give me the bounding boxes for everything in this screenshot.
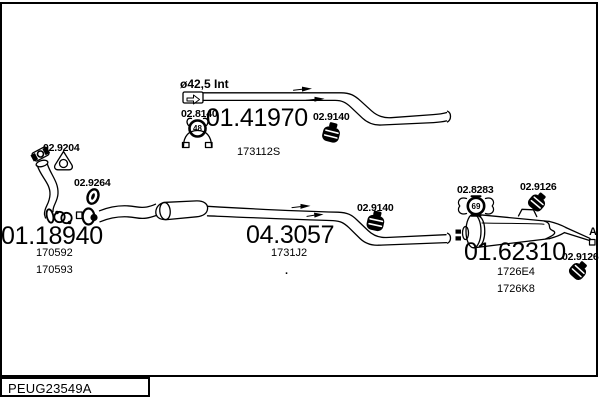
weld-arrow-icon xyxy=(314,213,324,218)
resonator-body xyxy=(156,201,208,220)
oe-number-rear-1: 1726E4 xyxy=(497,267,535,278)
hanger-size-label: 69 xyxy=(469,203,483,211)
diagram-code: PEUG23549A xyxy=(8,382,92,395)
muffler-bracket xyxy=(519,209,537,216)
part-number-rear-muffler: 01.62310 xyxy=(464,240,566,265)
end-marker-label: A xyxy=(589,227,597,238)
clamp-icon-top xyxy=(321,121,342,144)
gasket-size-label: 48 xyxy=(191,125,204,133)
ref-clamp-mid: 02.9140 xyxy=(357,203,394,214)
tailpipe xyxy=(565,228,591,241)
ref-clamp-rear-end: 02.9126 xyxy=(562,252,599,263)
weld-arrow-icon xyxy=(302,87,312,92)
ref-rubber-hanger: 02.8283 xyxy=(457,185,494,196)
stray-dot: . xyxy=(285,266,288,277)
weld-arrow-icon xyxy=(301,204,311,209)
oe-number-top-pipe: 173112S xyxy=(237,147,280,158)
oring-icon xyxy=(86,188,101,205)
muffler-end-seam xyxy=(544,221,555,239)
oe-number-front-pipe-1: 170592 xyxy=(36,248,73,259)
part-number-mid-pipe: 04.3057 xyxy=(246,223,334,248)
ref-clamp-rear-top: 02.9126 xyxy=(520,182,557,193)
exhaust-line-art xyxy=(0,0,600,400)
part-number-top-pipe: 01.41970 xyxy=(206,106,308,131)
oe-number-front-pipe-2: 170593 xyxy=(36,265,73,276)
ref-flange-gasket: 02.9204 xyxy=(43,143,80,154)
exhaust-diagram-page: ø42,5 Int 02.8140 01.41970 02.9140 17311… xyxy=(0,0,600,400)
diagram-code-box: PEUG23549A xyxy=(0,377,150,397)
part-number-front-pipe: 01.18940 xyxy=(1,224,103,249)
ref-clamp-top: 02.9140 xyxy=(313,112,350,123)
oe-number-mid-pipe: 1731J2 xyxy=(271,248,307,259)
flange-gasket-icon xyxy=(55,152,73,170)
pipe-diameter-note: ø42,5 Int xyxy=(180,78,229,90)
oe-number-rear-2: 1726K8 xyxy=(497,284,535,295)
ref-oring: 02.9264 xyxy=(74,178,111,189)
